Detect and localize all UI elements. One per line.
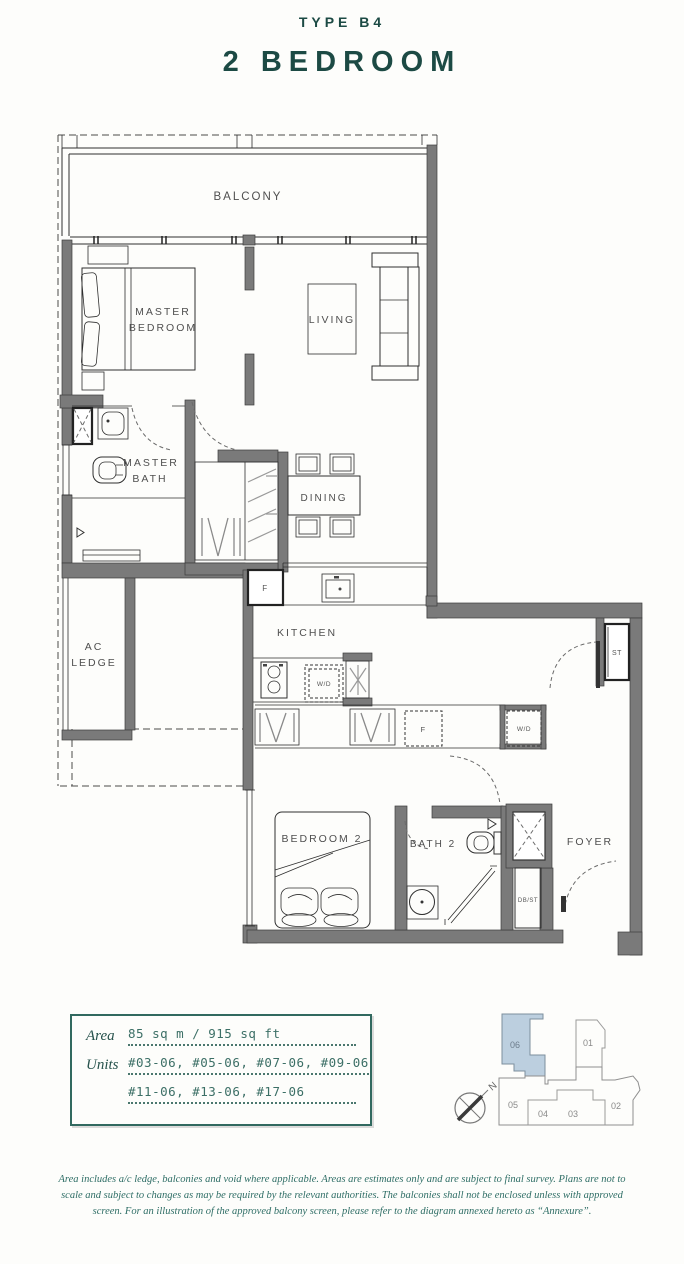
keyplan-label-02: 02 [611, 1101, 621, 1111]
keyplan-unit-06-shape [502, 1014, 545, 1076]
db-store-label: DB/ST [518, 898, 538, 904]
type-label: TYPE B4 [0, 14, 684, 30]
area-value: 85 sq m / 915 sq ft [128, 1026, 356, 1046]
compass-north-label: N [487, 1080, 500, 1093]
room-label-dining: DINING [301, 493, 348, 504]
compass: N [455, 1080, 499, 1123]
area-label: Area [86, 1028, 128, 1046]
washer-dryer-label: W/D [317, 681, 331, 688]
units-value-line1: #03-06, #05-06, #07-06, #09-06 [128, 1055, 369, 1075]
fridge-label: F [262, 584, 267, 593]
units-label-spacer [86, 1103, 128, 1104]
room-label-ac-ledge-2: LEDGE [71, 657, 117, 669]
bath2-fixtures [405, 821, 501, 925]
units-row: Units #03-06, #05-06, #07-06, #09-06 [86, 1055, 356, 1075]
washer-dryer-label-2: W/D [517, 726, 531, 733]
keyplan-label-06: 06 [510, 1040, 520, 1050]
unit-info-box: Area 85 sq m / 915 sq ft Units #03-06, #… [70, 1014, 372, 1126]
area-row: Area 85 sq m / 915 sq ft [86, 1026, 356, 1046]
ac-ledge-edge [63, 578, 68, 730]
kitchen-counter-top [248, 563, 427, 605]
keyplan-label-05: 05 [508, 1100, 518, 1110]
room-label-foyer: FOYER [567, 836, 613, 848]
master-bedroom-furniture [81, 246, 195, 390]
units-label: Units [86, 1057, 128, 1075]
keyplan-label-04: 04 [538, 1109, 548, 1119]
kitchen-counter-bottom [253, 658, 369, 702]
disclaimer-text: Area includes a/c ledge, balconies and v… [58, 1172, 626, 1219]
room-label-master-bedroom-2: BEDROOM [129, 322, 197, 334]
room-label-kitchen: KITCHEN [277, 627, 337, 639]
brochure-page: TYPE B4 2 BEDROOM [0, 0, 684, 1264]
keyplan-label-03: 03 [568, 1109, 578, 1119]
page-title: 2 BEDROOM [0, 46, 684, 79]
keyplan: 06 01 05 04 03 02 N [440, 1005, 655, 1153]
room-label-living: LIVING [309, 314, 355, 326]
room-label-master-bedroom-1: MASTER [135, 306, 191, 318]
room-label-master-bath-1: MASTER [123, 457, 179, 469]
room-label-ac-ledge-1: AC [85, 641, 104, 653]
corridor-cabinets [255, 705, 541, 748]
master-wardrobe [195, 462, 278, 560]
bedroom2-furniture [245, 790, 370, 928]
room-labels: BALCONY MASTER BEDROOM LIVING MASTER BAT… [71, 191, 613, 850]
floor-plan: BALCONY MASTER BEDROOM LIVING MASTER BAT… [50, 120, 650, 965]
room-label-bath2: BATH 2 [410, 839, 456, 850]
room-label-balcony: BALCONY [214, 191, 283, 203]
hall-door-arc [192, 402, 237, 450]
store-label: ST [612, 650, 622, 657]
keyplan-label-01: 01 [583, 1038, 593, 1048]
fridge-label-2: F [420, 725, 425, 734]
room-label-bedroom2: BEDROOM 2 [281, 833, 362, 845]
units-value-line2: #11-06, #13-06, #17-06 [128, 1084, 356, 1104]
room-label-master-bath-2: BATH [132, 473, 167, 485]
units-row-2: #11-06, #13-06, #17-06 [86, 1084, 356, 1104]
